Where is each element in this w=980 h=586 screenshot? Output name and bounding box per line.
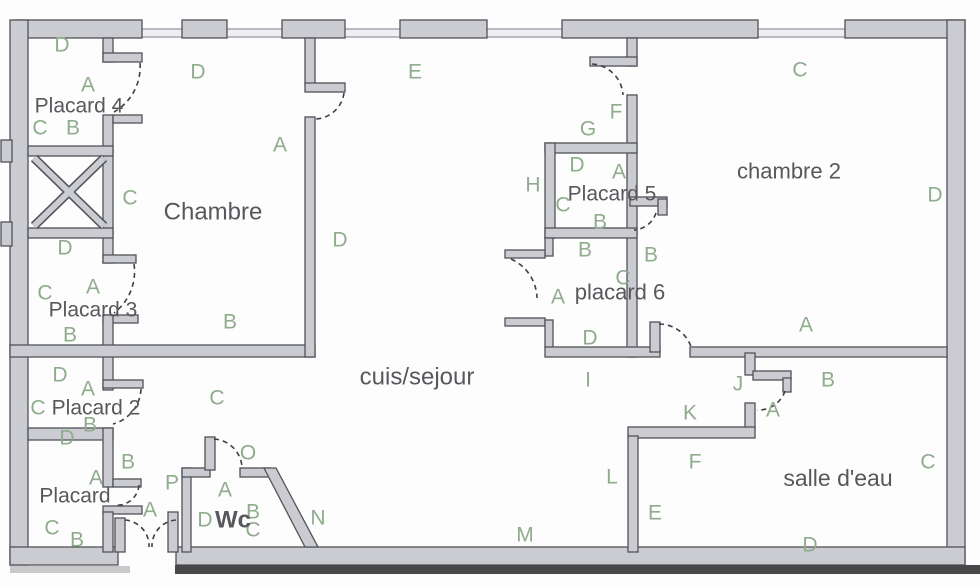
zone-letter-f-41: F <box>689 451 702 474</box>
wall-segment <box>545 143 637 153</box>
zone-letter-f-5: F <box>610 101 623 124</box>
wall-segment <box>182 468 191 552</box>
door-arc-entrance-left <box>125 520 149 547</box>
zone-letter-d-14: D <box>927 184 942 207</box>
zone-letter-b-16: B <box>593 211 607 234</box>
zone-letter-e-2: E <box>408 61 422 84</box>
room-label-placard-5: Placard 5 <box>568 183 657 206</box>
zone-letter-c-35: C <box>209 387 224 410</box>
zone-letter-b-20: B <box>644 244 658 267</box>
wall-segment <box>545 143 555 238</box>
zone-letter-a-26: A <box>799 314 813 337</box>
wall-segment <box>650 322 660 352</box>
zone-letter-p-45: P <box>165 472 179 495</box>
wall-segment <box>168 512 178 552</box>
wall-segment <box>658 199 667 215</box>
zone-letter-a-11: A <box>612 161 626 184</box>
wall-segment <box>505 250 545 258</box>
zone-letter-c-34: C <box>30 397 45 420</box>
room-label-placard-6: placard 6 <box>575 280 666 305</box>
door-arcs <box>113 63 785 547</box>
zone-letter-a-22: A <box>86 276 100 299</box>
wall-segment <box>10 547 118 565</box>
zone-letter-d-39: D <box>59 427 74 450</box>
wall-segment <box>562 20 758 38</box>
floor-plan-page: DDECAFCBGADAHCDCBDDBBCACABABDIJBDACCBKAD… <box>0 0 980 586</box>
zone-letter-a-38: A <box>766 399 780 422</box>
bottom-bar-right <box>175 565 980 574</box>
wall-segment <box>400 20 487 38</box>
wall-segment <box>176 547 965 565</box>
wall-segment <box>305 83 345 92</box>
wall-segment <box>947 20 965 565</box>
labels: DDECAFCBGADAHCDCBDDBBCACABABDIJBDACCBKAD… <box>30 34 942 557</box>
wall-segment <box>103 255 136 263</box>
wall-segment <box>182 20 227 38</box>
zone-letter-b-27: B <box>63 324 77 347</box>
room-label-placard: Placard <box>39 485 110 508</box>
zone-letter-j-30: J <box>733 373 744 396</box>
room-label-placard-4: Placard 4 <box>35 95 124 118</box>
zone-letter-d-32: D <box>52 364 67 387</box>
zone-letter-b-19: B <box>578 239 592 262</box>
zone-letter-n-52: N <box>310 507 325 530</box>
wall-segment <box>745 403 755 429</box>
room-label-chambre: Chambre <box>164 199 263 226</box>
room-label-wc: Wc <box>215 507 251 534</box>
zone-letter-c-53: C <box>44 517 59 540</box>
zone-letter-d-10: D <box>569 154 584 177</box>
zone-letter-a-4: A <box>81 74 95 97</box>
door-arc-chambre <box>315 93 344 119</box>
zone-letter-b-31: B <box>821 369 835 392</box>
wall-segment <box>103 380 143 388</box>
bottom-bar-left <box>10 566 130 573</box>
wall-segment <box>103 53 142 62</box>
door-arc-placard <box>114 485 139 505</box>
door-arc-placard6 <box>511 259 537 298</box>
zone-letter-c-6: C <box>32 117 47 140</box>
room-label-salle-d-eau: salle d'eau <box>783 465 892 491</box>
zone-letter-a-47: A <box>218 479 232 502</box>
zone-letter-b-54: B <box>70 529 84 552</box>
room-label-placard-3: Placard 3 <box>49 299 138 322</box>
zone-letter-d-57: D <box>802 534 817 557</box>
zone-letter-b-40: B <box>121 451 135 474</box>
zone-letter-b-7: B <box>66 117 80 140</box>
zone-letter-d-17: D <box>332 229 347 252</box>
wall-segment <box>103 428 113 487</box>
zone-letter-a-24: A <box>551 286 565 309</box>
zone-letter-e-55: E <box>648 502 662 525</box>
wall-segment <box>305 117 315 357</box>
zone-letter-l-43: L <box>606 466 618 489</box>
wall-segment <box>15 20 142 38</box>
wall-segment <box>545 238 553 256</box>
wall-segment <box>103 512 113 552</box>
wall-segment <box>545 228 637 238</box>
zone-letter-d-49: D <box>197 509 212 532</box>
zone-letter-k-37: K <box>683 402 697 425</box>
wall-segment <box>505 318 545 326</box>
wall-segment <box>115 518 125 552</box>
wall-segment <box>690 347 947 357</box>
zone-letter-g-8: G <box>580 118 596 141</box>
zone-letter-m-56: M <box>516 524 534 547</box>
wall-segment <box>205 437 215 470</box>
wall-segment <box>113 479 141 487</box>
wall-segment <box>103 115 113 263</box>
wall-segment <box>10 20 28 565</box>
wall-segment <box>628 427 755 438</box>
zone-letter-d-0: D <box>54 34 69 57</box>
door-arc-wc <box>214 439 242 467</box>
wall-segment <box>627 95 637 357</box>
wall-segment <box>305 38 315 85</box>
zone-letter-d-18: D <box>57 237 72 260</box>
zone-letter-a-9: A <box>273 134 287 157</box>
zone-letter-o-46: O <box>240 442 256 465</box>
wall-segment <box>28 146 113 156</box>
floor-plan-svg: DDECAFCBGADAHCDCBDDBBCACABABDIJBDACCBKAD… <box>0 0 980 586</box>
zone-letter-d-1: D <box>190 61 205 84</box>
door-arc-f <box>592 64 623 95</box>
zone-letter-h-12: H <box>525 174 540 197</box>
wall-segment <box>590 57 637 66</box>
zone-letter-i-29: I <box>585 369 591 392</box>
wall-segment <box>545 347 660 357</box>
room-label-placard-2: Placard 2 <box>52 397 141 420</box>
wall-segment <box>545 320 553 348</box>
zone-letter-d-28: D <box>582 327 597 350</box>
wall-segment <box>1 222 12 246</box>
room-label-cuis-sejour: cuis/sejour <box>360 364 475 391</box>
wall-segment <box>783 378 791 392</box>
zone-letter-c-3: C <box>792 59 807 82</box>
zone-letter-b-25: B <box>223 311 237 334</box>
wall-segment <box>1 140 12 162</box>
zone-letter-c-42: C <box>920 451 935 474</box>
wall-segment <box>628 436 638 552</box>
shaft-x <box>34 158 104 226</box>
wall-segment <box>282 20 345 38</box>
room-label-chambre-2: chambre 2 <box>737 159 841 184</box>
wall-segment <box>10 345 315 357</box>
zone-letter-a-48: A <box>143 499 157 522</box>
door-arc-chambre2 <box>659 324 692 350</box>
zone-letter-c-13: C <box>122 187 137 210</box>
